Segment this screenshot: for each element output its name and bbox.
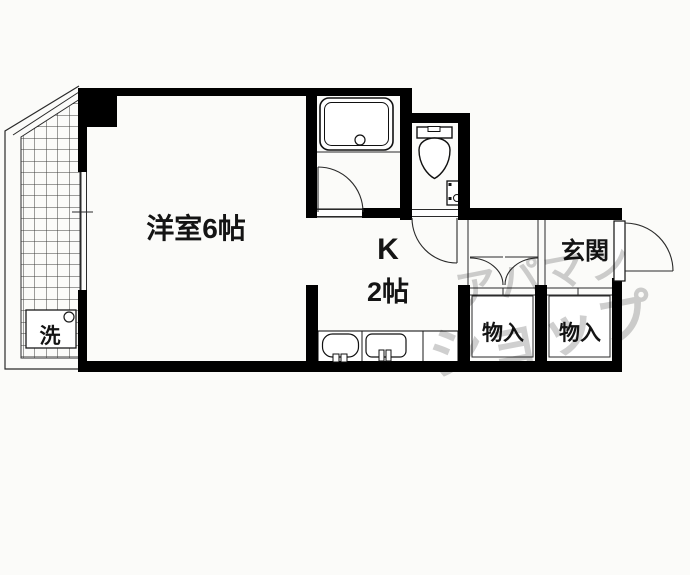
kitchen-size-label: 2帖 (367, 277, 409, 307)
washer-label: 洗 (40, 325, 61, 348)
main-room-label: 洋室6帖 (146, 212, 246, 244)
kitchen-letter-label: K (377, 233, 399, 266)
toilet-icon (417, 127, 452, 179)
wall-genkan-top (462, 208, 622, 220)
floor-plan: 洋室6帖 K 2帖 玄関 物入 物入 洗 アパマン ショップ (0, 0, 690, 575)
wall-room-stub (306, 285, 318, 365)
stove-knob-left (333, 354, 339, 362)
stove-knob-right (341, 354, 347, 362)
wall-bath-right (400, 88, 412, 220)
bathtub-icon (320, 98, 393, 150)
wall-bath-left (306, 96, 317, 218)
wall-left-lower (78, 290, 87, 372)
bath-door-swing-icon (318, 167, 363, 212)
faucet-icon (379, 350, 384, 361)
toilet-door-swing-icon (412, 218, 457, 263)
wall-top (88, 88, 412, 96)
wall-toilet-right (458, 113, 470, 220)
faucet-icon-2 (386, 350, 391, 361)
wall-toilet-top (412, 113, 458, 123)
wall-left-upper (78, 96, 87, 172)
